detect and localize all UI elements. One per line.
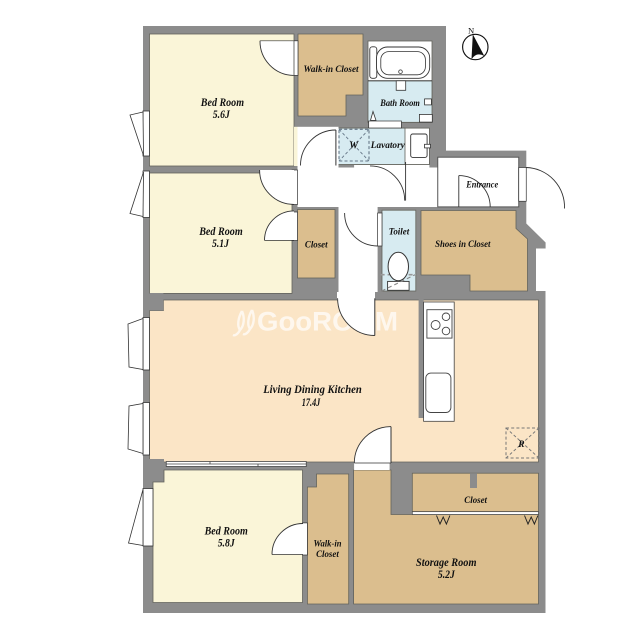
svg-text:Bath Room: Bath Room xyxy=(379,99,420,109)
svg-text:Entrance: Entrance xyxy=(465,180,499,190)
svg-text:Bed Room: Bed Room xyxy=(204,524,248,538)
svg-text:5.2J: 5.2J xyxy=(438,569,456,581)
svg-text:Closet: Closet xyxy=(305,241,328,251)
svg-text:Bed Room: Bed Room xyxy=(198,224,242,238)
svg-text:5.1J: 5.1J xyxy=(212,238,230,250)
svg-text:Walk-in Closet: Walk-in Closet xyxy=(304,65,359,75)
svg-text:W: W xyxy=(349,141,359,152)
svg-text:17.4J: 17.4J xyxy=(302,397,321,409)
svg-text:Closet: Closet xyxy=(316,550,339,560)
svg-text:Toilet: Toilet xyxy=(389,228,410,238)
svg-text:5.8J: 5.8J xyxy=(218,537,236,549)
svg-text:5.6J: 5.6J xyxy=(213,109,231,121)
svg-text:Storage Room: Storage Room xyxy=(416,555,477,569)
svg-text:R: R xyxy=(517,440,524,450)
svg-text:Closet: Closet xyxy=(464,496,487,506)
svg-text:Walk-in: Walk-in xyxy=(314,540,342,550)
svg-text:Lavatory: Lavatory xyxy=(370,141,406,151)
svg-text:N: N xyxy=(468,25,475,35)
svg-text:Living Dining Kitchen: Living Dining Kitchen xyxy=(262,382,362,396)
svg-text:Shoes in Closet: Shoes in Closet xyxy=(435,239,491,250)
svg-text:GooROOM: GooROOM xyxy=(257,307,398,337)
svg-text:Bed Room: Bed Room xyxy=(200,95,244,109)
